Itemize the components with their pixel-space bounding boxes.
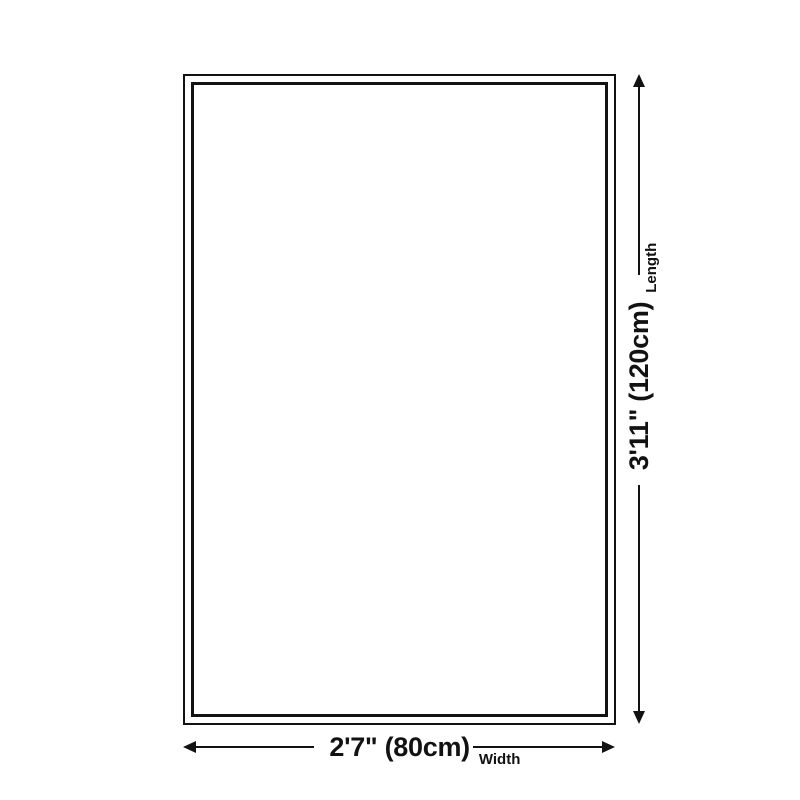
length-dimension: 3'11" (120cm) Length xyxy=(616,74,662,724)
length-label-wrap: Length xyxy=(630,243,648,293)
length-dimension-line-over-label xyxy=(638,242,640,276)
width-dimension: 2'7" (80cm) Width xyxy=(183,726,615,768)
length-value: 3'11" (120cm) xyxy=(624,302,655,470)
rug-size-diagram: 2'7" (80cm) Width 3'11" (120cm) Length xyxy=(0,0,800,800)
width-dimension-line-right xyxy=(520,746,602,748)
length-dimension-line-bottom xyxy=(638,485,640,711)
arrow-up-icon xyxy=(633,74,645,87)
arrow-right-icon xyxy=(602,741,615,753)
width-value: 2'7" (80cm) xyxy=(329,732,470,763)
length-dimension-line-top xyxy=(638,87,640,243)
width-label-wrap: Width xyxy=(479,738,521,756)
rug-outline-inner xyxy=(191,82,608,717)
width-label: Width xyxy=(479,751,521,768)
rug-outline-outer xyxy=(183,74,616,725)
length-label: Length xyxy=(643,243,660,293)
width-dimension-line-over-label xyxy=(473,746,521,748)
arrow-down-icon xyxy=(633,711,645,724)
arrow-left-icon xyxy=(183,741,196,753)
width-dimension-line-left xyxy=(196,746,314,748)
